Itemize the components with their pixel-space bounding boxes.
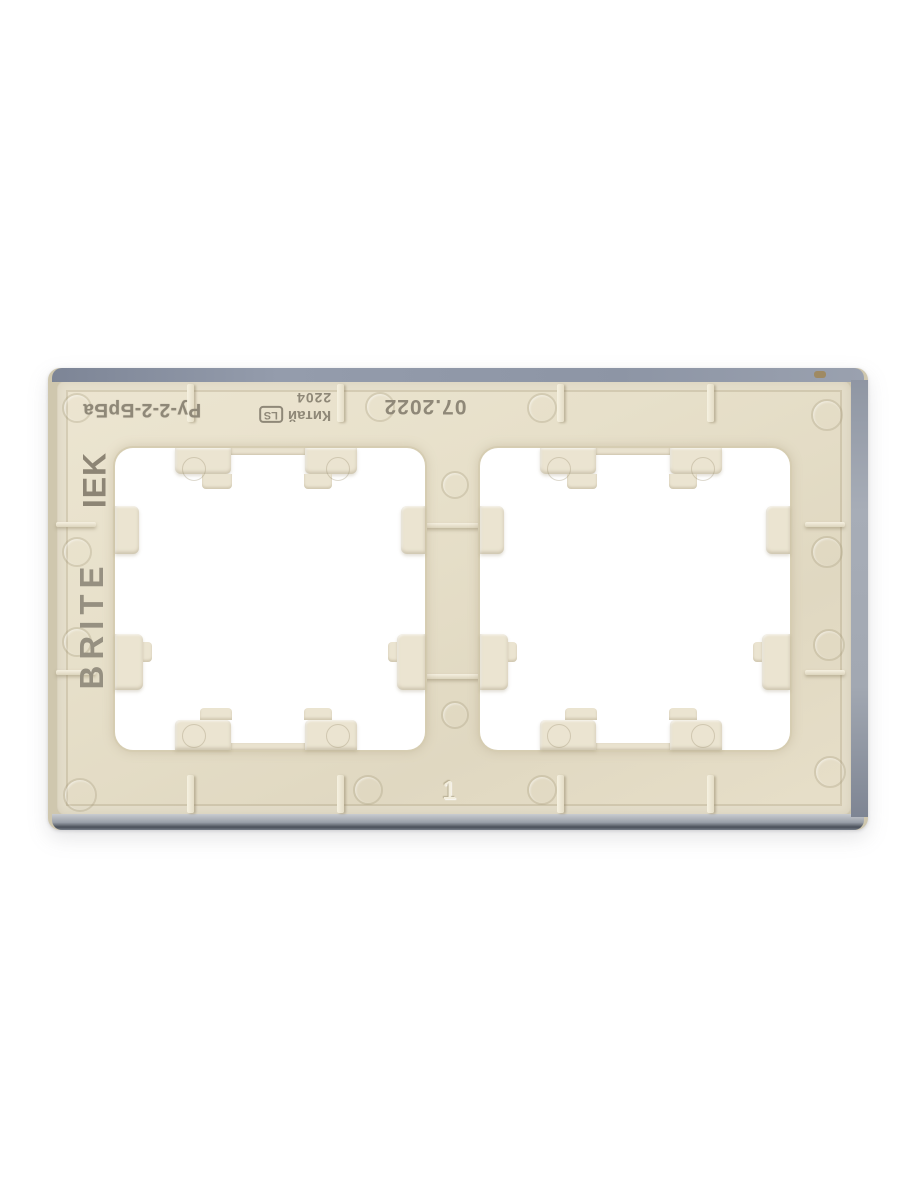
clip-tab [540,720,596,750]
stiffener-rib [805,522,845,527]
side-lug [397,634,425,690]
ejector-pin-mark [441,701,469,729]
clip-tab [670,720,722,750]
date-code-marking: 07.2022 [384,394,467,418]
mounting-pin [187,775,194,813]
model-code-marking: Ру-2-2-БрБа [83,398,201,420]
mounting-pin [557,384,564,422]
ejector-pin-mark [63,778,97,812]
stiffener-rib [425,523,480,528]
side-lug [401,506,425,554]
top-edge-strip [52,368,864,382]
ejector-pin-mark [527,393,557,423]
ejector-pin-mark [441,471,469,499]
clip-tab [305,448,357,474]
window-ledge [231,743,305,750]
window-ledge [596,448,670,455]
mounting-pin [707,384,714,422]
clip-tab [670,448,722,474]
origin-marking: КитайLS 2204 [259,390,331,424]
frame-back: Ру-2-2-БрБа КитайLS 2204 07.2022 IEK BRI… [48,368,868,830]
mold-stamp-box: LS [259,406,283,423]
mounting-pin [337,384,344,422]
side-lug [480,506,504,554]
ejector-pin-mark [527,775,557,805]
window-opening-right [480,448,790,750]
side-lug [115,634,143,690]
ejector-pin-mark [813,629,845,661]
stiffener-rib [56,522,96,527]
iek-brand-logo: IEK [77,452,114,508]
ejector-pin-mark [811,536,843,568]
mounting-pin [707,775,714,813]
clip-tab [305,720,357,750]
window-opening-left [115,448,425,750]
batch-code-marking: 2204 [259,390,331,406]
ejector-pin-mark [814,756,846,788]
product-photo: Ру-2-2-БрБа КитайLS 2204 07.2022 IEK BRI… [0,0,900,1200]
stiffener-rib [425,674,480,679]
country-marking: Китай [288,407,331,424]
side-lug [766,506,790,554]
clip-tab [175,720,231,750]
side-lug [115,506,139,554]
clip-tab [175,448,231,474]
ejector-pin-mark [811,399,843,431]
right-edge-strip [851,380,868,817]
cavity-number-marking: 1 [442,775,456,806]
bottom-edge-strip [52,814,864,830]
brite-series-marking: BRITE [73,561,111,690]
side-lug [762,634,790,690]
mounting-pin [337,775,344,813]
clip-tab [540,448,596,474]
surface-speck [814,371,826,378]
ejector-pin-mark [353,775,383,805]
stiffener-rib [805,670,845,675]
side-lug [480,634,508,690]
window-ledge [596,743,670,750]
mounting-pin [557,775,564,813]
window-ledge [231,448,305,455]
